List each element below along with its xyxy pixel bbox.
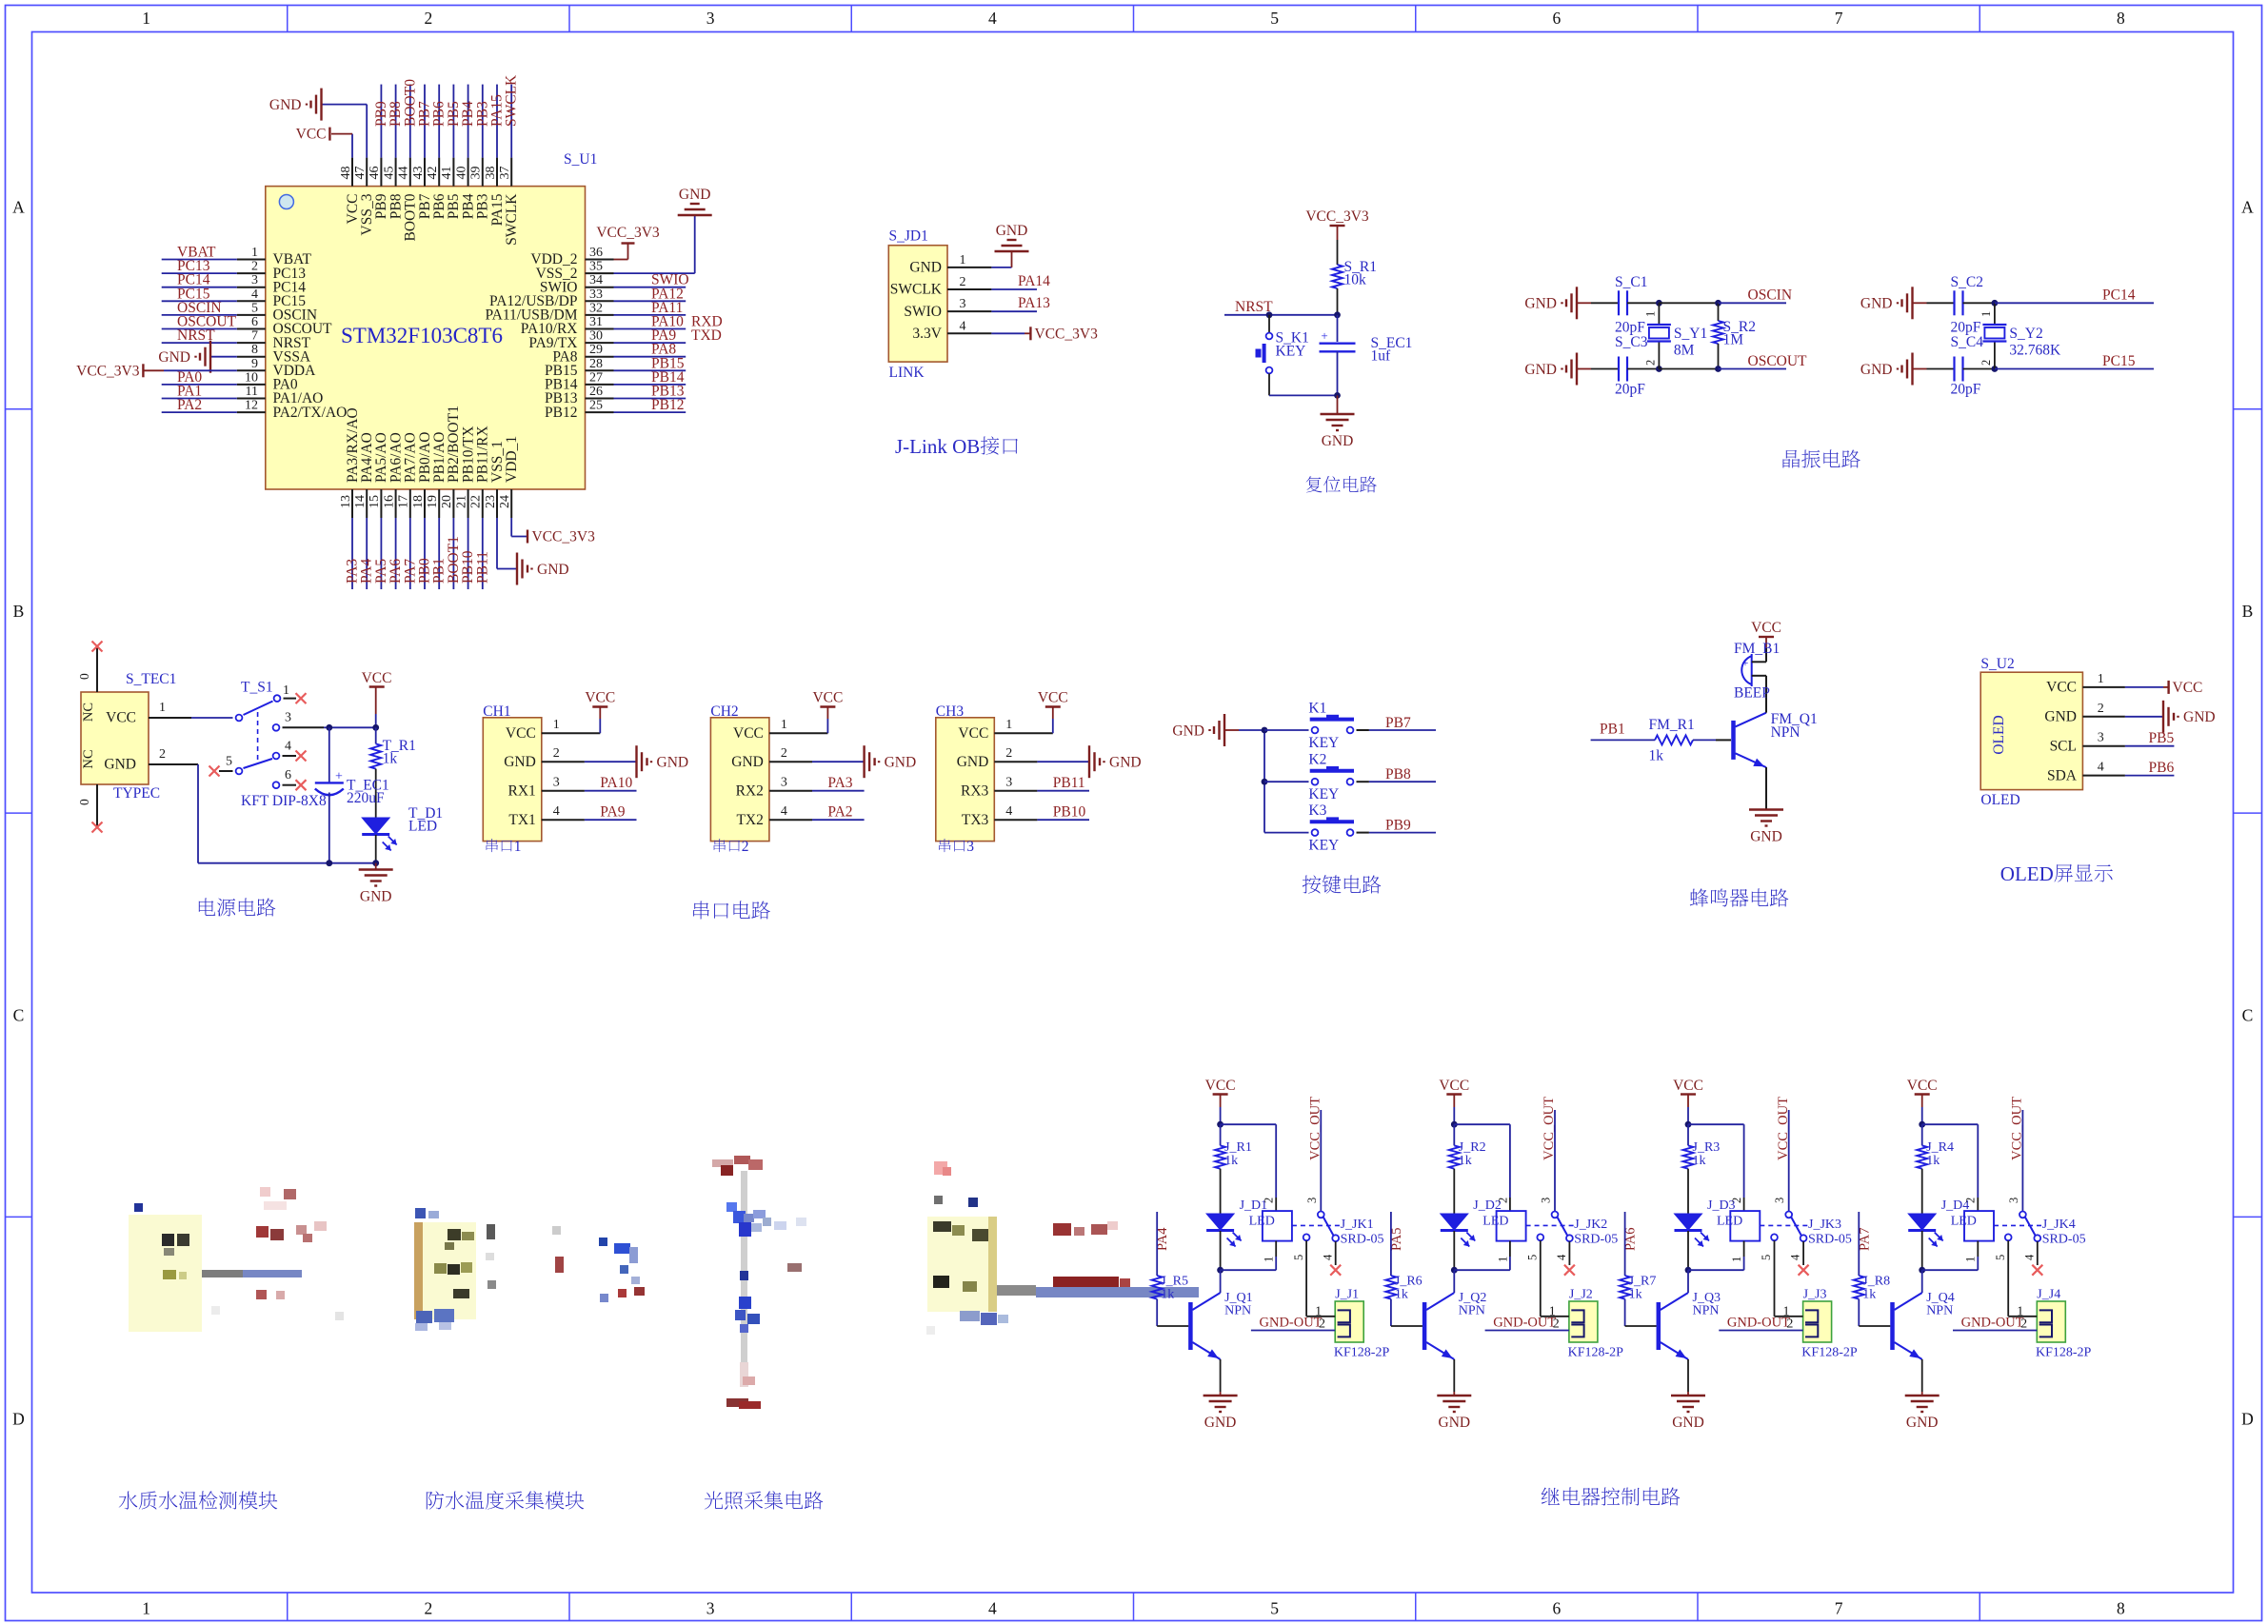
svg-text:B: B [2242,602,2254,621]
svg-text:1: 1 [514,839,522,855]
svg-text:27: 27 [589,370,603,385]
svg-text:2: 2 [1553,1317,1560,1332]
svg-text:GND: GND [1204,1415,1237,1431]
svg-text:S_C2: S_C2 [1951,274,1983,290]
svg-text:J_R3: J_R3 [1693,1140,1721,1155]
svg-text:3: 3 [285,711,291,725]
svg-text:4: 4 [553,804,560,819]
svg-text:5: 5 [1270,1599,1279,1618]
svg-text:GND: GND [885,755,917,771]
svg-text:SWCLK: SWCLK [504,193,520,246]
svg-text:VCC: VCC [1439,1078,1469,1094]
svg-text:1: 1 [159,701,166,715]
svg-text:26: 26 [589,385,603,399]
svg-text:GND: GND [360,889,392,905]
svg-text:GND-OUT: GND-OUT [1260,1316,1323,1331]
svg-text:20pF: 20pF [1951,320,1981,336]
svg-text:PB12: PB12 [651,397,684,413]
svg-text:20pF: 20pF [1615,320,1645,336]
svg-text:GND: GND [1439,1415,1471,1431]
svg-text:PA2: PA2 [177,397,202,413]
svg-text:SWIO: SWIO [904,304,942,320]
svg-text:1: 1 [1496,1257,1509,1262]
svg-text:STM32F103C8T6: STM32F103C8T6 [341,324,503,347]
svg-text:GND-OUT: GND-OUT [1727,1316,1790,1331]
svg-text:0: 0 [77,799,91,805]
svg-text:1: 1 [781,718,787,732]
svg-text:2: 2 [1496,1198,1509,1203]
svg-text:S_Y2: S_Y2 [2009,326,2042,342]
svg-text:36: 36 [589,246,603,260]
svg-text:0: 0 [77,673,91,680]
svg-text:PB12: PB12 [545,405,577,421]
svg-text:FM_B1: FM_B1 [1734,641,1780,657]
svg-text:39: 39 [469,167,484,180]
svg-text:NPN: NPN [1224,1304,1251,1318]
svg-text:J_R7: J_R7 [1629,1275,1657,1289]
svg-text:K1: K1 [1308,701,1326,717]
svg-text:2: 2 [425,9,433,28]
svg-text:37: 37 [498,167,512,180]
svg-text:KEY: KEY [1308,838,1339,854]
svg-text:2: 2 [1730,1198,1743,1203]
svg-text:GND: GND [1524,296,1557,312]
svg-text:4: 4 [285,740,291,754]
svg-text:VCC: VCC [106,710,136,726]
svg-text:+: + [335,770,343,784]
svg-text:1k: 1k [1693,1154,1706,1168]
svg-text:J_J4: J_J4 [2037,1288,2060,1302]
svg-text:VCC: VCC [958,725,988,742]
svg-text:S_TEC1: S_TEC1 [126,671,176,687]
svg-text:KEY: KEY [1308,735,1339,751]
svg-text:5: 5 [1526,1255,1540,1260]
svg-text:20: 20 [440,495,454,508]
svg-text:PA2/TX/AO: PA2/TX/AO [273,405,348,421]
svg-text:SRD-05: SRD-05 [2042,1233,2086,1247]
svg-text:GND: GND [909,260,942,276]
svg-text:KF128-2P: KF128-2P [2036,1346,2092,1360]
svg-text:6: 6 [1553,9,1562,28]
svg-text:1: 1 [142,1599,150,1618]
svg-text:1: 1 [1730,1257,1743,1262]
svg-text:+: + [1742,656,1749,669]
svg-text:18: 18 [411,495,426,508]
svg-text:5: 5 [1994,1255,2007,1260]
svg-text:4: 4 [1005,804,1012,819]
svg-text:1: 1 [142,9,150,28]
svg-text:A: A [12,198,25,217]
svg-text:GND: GND [1322,433,1354,449]
svg-text:GND: GND [1172,723,1204,739]
svg-text:4: 4 [2098,761,2104,775]
svg-text:KFT DIP-8X8: KFT DIP-8X8 [241,793,327,809]
svg-text:47: 47 [353,167,368,180]
svg-text:41: 41 [440,167,454,180]
svg-text:3: 3 [781,776,787,790]
svg-text:5: 5 [1292,1255,1305,1260]
svg-text:28: 28 [589,357,603,371]
svg-text:OLED: OLED [1991,715,2007,754]
svg-text:3: 3 [553,776,560,790]
svg-text:J_R4: J_R4 [1926,1140,1954,1155]
svg-text:1: 1 [283,683,289,698]
svg-text:1k: 1k [1395,1288,1408,1302]
svg-text:4: 4 [960,319,966,333]
svg-text:OLED: OLED [2000,862,2054,885]
svg-text:PA3: PA3 [827,775,852,791]
svg-text:VCC: VCC [1205,1078,1236,1094]
svg-text:PB8: PB8 [1385,766,1411,782]
svg-text:3: 3 [706,1599,715,1618]
svg-text:5: 5 [226,755,232,769]
svg-text:46: 46 [368,167,382,180]
svg-text:2: 2 [1319,1317,1325,1332]
svg-text:GND: GND [996,223,1028,239]
svg-text:1k: 1k [1224,1154,1238,1168]
svg-text:33: 33 [589,287,603,302]
svg-text:J_J3: J_J3 [1803,1288,1827,1302]
svg-text:2: 2 [251,260,258,274]
svg-text:19: 19 [426,495,440,508]
svg-text:45: 45 [382,167,396,180]
svg-text:2: 2 [2020,1317,2027,1332]
svg-text:VCC: VCC [1751,620,1781,636]
svg-text:35: 35 [589,260,603,274]
svg-text:2: 2 [1643,360,1657,366]
svg-text:14: 14 [353,495,368,508]
svg-text:4: 4 [988,1599,997,1618]
svg-text:32: 32 [589,301,603,315]
svg-text:C: C [2242,1005,2254,1024]
svg-text:J_R1: J_R1 [1224,1140,1252,1155]
svg-text:20pF: 20pF [1951,382,1981,398]
svg-text:1k: 1k [1161,1288,1174,1302]
svg-text:VCC: VCC [2046,680,2077,696]
svg-text:1M: 1M [1723,332,1744,348]
svg-text:C: C [13,1005,25,1024]
svg-text:1k: 1k [1649,748,1664,764]
svg-text:21: 21 [454,495,468,508]
svg-text:J_JK1: J_JK1 [1341,1218,1374,1232]
svg-text:S_C4: S_C4 [1951,334,1984,350]
svg-text:PB7: PB7 [1385,715,1411,731]
svg-text:6: 6 [285,768,291,782]
svg-text:6: 6 [1553,1599,1562,1618]
svg-text:11: 11 [246,385,258,399]
svg-text:8: 8 [251,343,258,357]
svg-text:2: 2 [425,1599,433,1618]
svg-text:S_Y1: S_Y1 [1674,326,1707,342]
svg-text:NC: NC [81,749,96,768]
svg-text:34: 34 [589,273,603,287]
svg-text:SWCLK: SWCLK [504,74,520,127]
svg-text:22: 22 [469,495,484,508]
svg-text:FM_R1: FM_R1 [1649,717,1695,733]
svg-text:VCC: VCC [506,725,536,742]
svg-text:2: 2 [1263,1198,1276,1203]
svg-text:CH3: CH3 [936,703,965,720]
svg-text:SRD-05: SRD-05 [1574,1233,1618,1247]
svg-text:GND: GND [2183,709,2216,725]
svg-text:PB6: PB6 [2149,760,2175,776]
svg-text:1k: 1k [1459,1154,1472,1168]
svg-text:16: 16 [382,495,396,508]
svg-text:OSCIN: OSCIN [1748,287,1793,304]
svg-text:2: 2 [159,747,166,762]
svg-text:A: A [2241,198,2254,217]
svg-text:6: 6 [251,315,258,329]
svg-text:10: 10 [245,370,258,385]
svg-text:15: 15 [368,495,382,508]
svg-text:S_JD1: S_JD1 [889,228,928,245]
svg-text:VCC_3V3: VCC_3V3 [1305,208,1369,225]
svg-text:13: 13 [339,495,353,508]
svg-text:1: 1 [960,253,966,267]
svg-text:3: 3 [251,273,258,287]
svg-text:7: 7 [1835,9,1843,28]
svg-text:SDA: SDA [2047,767,2078,783]
svg-text:1: 1 [2098,672,2104,686]
svg-text:LINK: LINK [889,365,925,381]
svg-text:2: 2 [781,746,787,761]
svg-text:KEY: KEY [1276,344,1306,360]
svg-text:3: 3 [966,839,974,855]
svg-text:KF128-2P: KF128-2P [1801,1346,1858,1360]
svg-text:3: 3 [1005,776,1012,790]
svg-text:2: 2 [1005,746,1012,761]
svg-text:VCC: VCC [733,725,764,742]
svg-text:4: 4 [1789,1254,1802,1260]
svg-text:GND: GND [504,754,536,770]
svg-text:1: 1 [553,718,560,732]
svg-text:SCL: SCL [2050,738,2077,754]
svg-text:VCC_3V3: VCC_3V3 [1035,327,1099,343]
svg-text:J_JK2: J_JK2 [1574,1218,1607,1232]
svg-text:GND: GND [2044,709,2077,725]
svg-text:T_S1: T_S1 [241,680,273,696]
svg-text:38: 38 [484,167,498,180]
svg-text:8: 8 [2117,1599,2125,1618]
svg-text:GND: GND [537,562,569,578]
svg-text:GND: GND [1906,1415,1939,1431]
svg-text:SWCLK: SWCLK [890,282,943,298]
svg-text:4: 4 [988,9,997,28]
svg-text:VCC: VCC [812,690,843,706]
svg-text:2: 2 [960,275,966,289]
svg-text:S_U2: S_U2 [1980,656,2014,672]
svg-text:3: 3 [1773,1198,1786,1203]
svg-text:25: 25 [589,399,603,413]
svg-text:1: 1 [1263,1257,1276,1262]
svg-text:SRD-05: SRD-05 [1341,1233,1384,1247]
svg-text:VCC_3V3: VCC_3V3 [76,363,140,379]
svg-text:GND: GND [1672,1415,1704,1431]
svg-text:1k: 1k [1629,1288,1642,1302]
svg-text:3: 3 [960,297,966,311]
svg-text:D: D [12,1410,25,1429]
svg-text:5: 5 [1760,1255,1773,1260]
svg-text:8M: 8M [1674,343,1695,359]
svg-text:S_C1: S_C1 [1615,274,1647,290]
svg-text:GND: GND [1860,296,1893,312]
svg-text:J-Link OB: J-Link OB [895,435,980,458]
svg-text:5: 5 [251,301,258,315]
svg-text:KF128-2P: KF128-2P [1334,1346,1390,1360]
svg-text:4: 4 [251,287,258,302]
svg-text:GND: GND [731,754,764,770]
svg-text:OSCOUT: OSCOUT [1748,353,1808,369]
svg-text:PB5: PB5 [2149,730,2175,746]
svg-text:8: 8 [2117,9,2125,28]
svg-text:K3: K3 [1308,802,1326,819]
svg-text:PB10: PB10 [1053,804,1086,821]
svg-text:23: 23 [484,495,498,508]
svg-text:1uf: 1uf [1371,348,1392,365]
svg-text:VCC: VCC [296,127,327,143]
svg-text:GND: GND [1109,755,1142,771]
svg-text:GND: GND [1524,362,1557,378]
svg-text:PB9: PB9 [1385,818,1411,834]
svg-text:1k: 1k [1862,1288,1876,1302]
svg-text:OLED: OLED [1980,792,2019,808]
svg-text:4: 4 [1321,1254,1334,1260]
svg-text:NC: NC [81,703,96,722]
svg-text:B: B [13,602,25,621]
svg-text:K2: K2 [1308,752,1326,768]
svg-text:2: 2 [1786,1317,1793,1332]
svg-text:3: 3 [1540,1198,1553,1203]
svg-text:D: D [2241,1410,2254,1429]
svg-text:GND-OUT: GND-OUT [1961,1316,2024,1331]
svg-text:TX1: TX1 [508,812,535,828]
svg-text:+: + [1321,328,1327,343]
svg-text:44: 44 [397,167,411,180]
svg-text:TYPEC: TYPEC [113,785,160,802]
svg-text:PB1: PB1 [1600,722,1625,738]
svg-text:TX2: TX2 [736,812,763,828]
svg-text:PA10: PA10 [600,775,632,791]
svg-text:CH2: CH2 [710,703,738,720]
svg-text:VCC: VCC [1673,1078,1703,1094]
svg-text:3: 3 [2098,731,2104,745]
svg-text:42: 42 [426,167,440,180]
svg-text:VCC: VCC [1907,1078,1938,1094]
svg-text:1: 1 [251,246,258,260]
svg-text:BEEP: BEEP [1734,685,1770,702]
svg-text:1: 1 [1005,718,1012,732]
svg-text:1k: 1k [1926,1154,1940,1168]
svg-text:9: 9 [251,357,258,371]
svg-text:GND: GND [1750,829,1782,845]
svg-text:S_C3: S_C3 [1615,334,1648,350]
svg-text:J_JK4: J_JK4 [2042,1218,2076,1232]
svg-text:220uF: 220uF [347,790,385,806]
svg-text:PC14: PC14 [2102,287,2136,304]
svg-text:SRD-05: SRD-05 [1808,1233,1852,1247]
svg-text:4: 4 [781,804,787,819]
svg-text:KF128-2P: KF128-2P [1568,1346,1624,1360]
svg-text:GND: GND [158,349,190,366]
svg-text:RX2: RX2 [736,782,764,799]
svg-text:PB11: PB11 [474,551,490,584]
svg-text:48: 48 [339,167,353,180]
svg-text:PA14: PA14 [1018,273,1050,289]
svg-text:NPN: NPN [1926,1304,1953,1318]
svg-text:GND: GND [657,755,689,771]
svg-text:VDD_1: VDD_1 [504,436,520,483]
svg-text:TXD: TXD [691,327,722,344]
svg-text:NPN: NPN [1771,724,1800,741]
svg-text:29: 29 [589,343,603,357]
svg-text:1: 1 [1964,1257,1978,1262]
svg-text:GND: GND [679,187,711,203]
svg-text:43: 43 [411,167,426,180]
svg-text:5: 5 [1270,9,1279,28]
svg-text:7: 7 [1835,1599,1843,1618]
svg-text:S_U1: S_U1 [564,151,597,168]
svg-text:RX1: RX1 [508,782,536,799]
svg-text:PA2: PA2 [827,804,852,821]
svg-text:3: 3 [2007,1198,2020,1203]
svg-text:31: 31 [589,315,603,329]
svg-text:J_R6: J_R6 [1395,1275,1422,1289]
svg-text:J_R2: J_R2 [1459,1140,1486,1155]
svg-text:J_R8: J_R8 [1862,1275,1890,1289]
svg-text:10k: 10k [1344,272,1367,288]
svg-text:NPN: NPN [1459,1304,1485,1318]
svg-text:VCC: VCC [1038,690,1068,706]
svg-text:PA9: PA9 [600,804,625,821]
svg-text:2: 2 [1980,360,1993,366]
svg-text:4: 4 [1555,1254,1568,1260]
svg-text:VCC_3V3: VCC_3V3 [596,225,660,241]
svg-text:20pF: 20pF [1615,382,1645,398]
svg-text:GND: GND [957,754,989,770]
svg-text:VCC: VCC [362,670,392,686]
svg-text:PC15: PC15 [2102,353,2136,369]
svg-text:24: 24 [498,495,512,508]
svg-text:1: 1 [1980,311,1993,317]
svg-text:3: 3 [706,9,715,28]
svg-text:CH1: CH1 [483,703,510,720]
svg-text:40: 40 [454,167,468,180]
svg-text:12: 12 [245,399,258,413]
svg-text:RX3: RX3 [961,782,989,799]
svg-text:GND: GND [104,757,136,773]
svg-text:J_J2: J_J2 [1569,1288,1593,1302]
svg-text:1k: 1k [383,751,398,767]
svg-text:17: 17 [397,495,411,508]
svg-text:32.768K: 32.768K [2009,343,2061,359]
svg-text:3.3V: 3.3V [912,326,942,342]
svg-text:PA13: PA13 [1018,295,1050,311]
svg-text:1: 1 [1643,311,1657,317]
svg-text:2: 2 [742,839,749,855]
svg-text:LED: LED [408,819,437,835]
svg-text:VCC: VCC [585,690,615,706]
svg-text:GND: GND [269,97,302,113]
svg-text:4: 4 [2022,1254,2036,1260]
svg-text:VCC_3V3: VCC_3V3 [532,529,596,545]
svg-text:VCC: VCC [2173,680,2203,696]
svg-text:GND-OUT: GND-OUT [1493,1316,1556,1331]
svg-text:2: 2 [553,746,560,761]
svg-text:30: 30 [589,329,603,344]
svg-text:PB11: PB11 [1053,775,1085,791]
svg-text:KEY: KEY [1308,786,1339,802]
svg-text:2: 2 [1964,1198,1978,1203]
